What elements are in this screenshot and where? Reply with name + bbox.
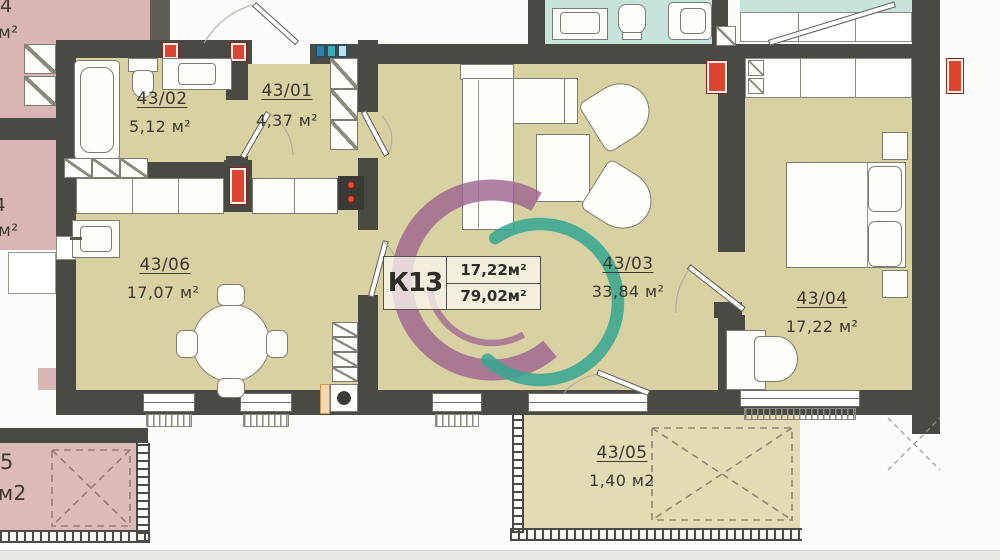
floor-plan: 43/02 5,12 м² 43/01 4,37 м² 43/06 17,07 …	[0, 0, 1000, 560]
chair-icon	[217, 284, 245, 306]
room-area-4305: 1,40 м2	[567, 472, 677, 490]
wall-top-bath	[56, 40, 230, 58]
closet-divider	[800, 59, 801, 97]
teal-bath-wall-left	[528, 0, 545, 44]
wall-right-outer	[912, 44, 940, 434]
room-area-4303: 33,84 м²	[573, 283, 683, 301]
room-number-4301: 43/01	[232, 82, 342, 102]
neighbor-label-top-unit: м²	[0, 24, 30, 44]
wall-kitchen-living	[358, 295, 378, 390]
stove-burner-icon	[347, 195, 355, 203]
vent-icon	[316, 45, 325, 57]
neighbor-niche-outline	[8, 252, 56, 294]
balcony-railing-left	[512, 415, 524, 533]
unit-areas: 17,22м² 79,02м²	[446, 257, 540, 309]
window-kitchen-1	[143, 393, 195, 412]
window-bedroom	[740, 390, 860, 407]
window-living	[432, 393, 482, 412]
neighbor-label-top-number: 4	[0, 0, 22, 18]
counter-divider	[178, 179, 179, 213]
nightstand-icon	[882, 270, 908, 298]
counter-divider	[132, 179, 133, 213]
shaft-marker-red	[706, 60, 728, 94]
pink-balcony-wall	[0, 428, 148, 443]
unit-living-area: 17,22м²	[447, 257, 540, 284]
kitchen-sink-basin	[80, 226, 112, 252]
pillow-icon	[868, 221, 902, 267]
sofa-vertical-icon	[462, 78, 514, 230]
pink-balcony-railing-bottom	[0, 530, 150, 543]
neighbor-room-pink-sliver	[38, 368, 56, 390]
toilet-icon	[618, 4, 646, 34]
coffee-table-icon	[536, 134, 590, 202]
wall-left-outer	[56, 40, 76, 390]
shaft-marker-red	[230, 42, 247, 62]
neighbor-label-mid-number: 4	[0, 196, 16, 217]
room-area-4304: 17,22 м²	[767, 318, 877, 336]
closet-cabinet-icon	[748, 78, 764, 94]
window-sill	[435, 414, 479, 427]
unit-card: К13 17,22м² 79,02м²	[383, 256, 541, 310]
bath-cabinet-icon	[92, 158, 120, 178]
window-sill	[744, 408, 856, 420]
bathtub-inner	[80, 67, 114, 153]
neighbor-cabinet-icon	[24, 76, 56, 106]
unit-code: К13	[384, 257, 446, 309]
balcony-railing-bottom	[510, 528, 802, 541]
dining-table-icon	[192, 304, 270, 382]
washing-machine-icon	[330, 384, 358, 412]
appliance-cabinet-icon	[332, 337, 358, 352]
appliance-cabinet-icon	[332, 322, 358, 337]
boiler-label	[320, 384, 330, 414]
shower-corner-icon	[716, 26, 736, 46]
bedroom-closet-row	[745, 58, 912, 98]
counter-divider	[294, 179, 295, 213]
room-area-4302: 5,12 м²	[105, 118, 215, 136]
shaft-marker-red	[229, 167, 247, 205]
wall-right-top	[912, 0, 940, 44]
nightstand-icon	[882, 132, 908, 160]
neighbor-cabinet-icon	[24, 44, 56, 74]
closet-divider	[855, 59, 856, 97]
room-number-4305: 43/05	[567, 444, 677, 464]
desk-chair-icon	[754, 336, 798, 382]
faucet-icon	[70, 237, 82, 240]
shower-tray-icon	[680, 8, 706, 34]
corridor-wall	[150, 0, 170, 44]
toilet-base-icon	[622, 32, 642, 40]
wall-under-pink	[0, 118, 56, 140]
vent-icon	[327, 45, 336, 57]
room-area-4306: 17,07 м²	[108, 284, 218, 302]
appliance-cabinet-icon	[332, 367, 358, 382]
window-sill	[146, 414, 192, 427]
chair-icon	[176, 330, 198, 358]
wall-top-bedroom	[745, 44, 912, 58]
room-area-4301: 4,37 м²	[232, 112, 342, 130]
unit-total-area: 79,02м²	[447, 284, 540, 310]
pink-balcony-railing-right	[136, 443, 150, 542]
pillow-icon	[868, 166, 902, 212]
bath-cabinet-icon	[120, 158, 148, 178]
wall-hall-living-a	[358, 40, 378, 112]
neighbor-label-mid-unit: м²	[0, 222, 30, 242]
sofa-end-icon	[564, 78, 578, 124]
stove-burner-icon	[347, 181, 355, 189]
window-kitchen-2	[240, 393, 292, 412]
room-number-4303: 43/03	[573, 255, 683, 275]
page-edge-strip	[0, 550, 1000, 560]
neighbor-label-bottom-unit: м2	[0, 482, 40, 505]
chair-icon	[266, 330, 288, 358]
room-number-4302: 43/02	[107, 90, 217, 110]
entry-door-leaf	[252, 2, 299, 45]
vanity-basin-icon	[178, 63, 216, 85]
room-number-4304: 43/04	[767, 290, 877, 310]
chair-icon	[217, 378, 245, 398]
bath-cabinet-icon	[64, 158, 92, 178]
kitchen-counter	[76, 178, 224, 214]
room-number-4306: 43/06	[110, 256, 220, 276]
neighbor-label-bottom-number: 5	[0, 450, 24, 474]
vent-icon	[338, 45, 347, 57]
closet-cabinet-icon	[748, 60, 764, 76]
sofa-back-line	[478, 80, 479, 228]
window-sill	[243, 414, 289, 427]
balcony-door-window	[528, 393, 648, 412]
appliance-cabinet-icon	[332, 352, 358, 367]
sink-basin-icon	[560, 12, 600, 34]
shaft-marker-red	[946, 58, 964, 94]
